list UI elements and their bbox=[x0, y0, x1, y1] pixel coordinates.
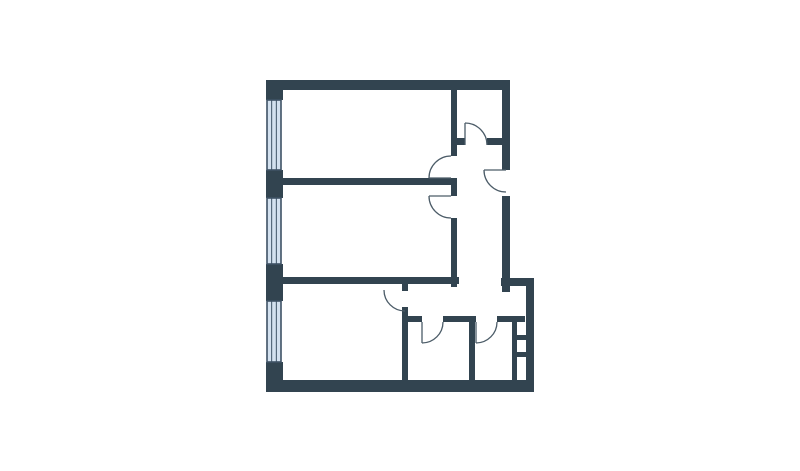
shaft-rung-1 bbox=[517, 335, 526, 340]
right-jog-wall bbox=[501, 278, 534, 286]
right-wall-upper bbox=[502, 80, 510, 170]
left-wall-pier-lower-mid bbox=[266, 264, 283, 301]
bath-toilet-divider-wall bbox=[469, 322, 475, 380]
top-wall bbox=[266, 80, 510, 90]
plan-background bbox=[0, 0, 800, 471]
corridor-wall-seg-top bbox=[451, 90, 457, 156]
storage-wall-seg-left bbox=[451, 138, 465, 145]
floor-plan-svg bbox=[0, 0, 800, 471]
shaft-left-wall bbox=[512, 322, 517, 380]
window-1 bbox=[267, 100, 281, 170]
living-door-stub-top bbox=[402, 284, 408, 291]
right-wall-lower bbox=[526, 286, 534, 386]
left-wall-pier-upper-mid bbox=[266, 170, 283, 198]
bath-wall-seg-left bbox=[402, 316, 422, 322]
window-2 bbox=[267, 198, 281, 264]
bath-wall-seg-right bbox=[497, 316, 525, 322]
bath-wall-seg-mid bbox=[443, 316, 476, 322]
storage-wall-seg-right bbox=[487, 138, 502, 145]
corridor-wall-seg-bottom bbox=[451, 218, 457, 287]
left-wall-pier-bottom bbox=[266, 362, 283, 392]
shaft-rung-2 bbox=[517, 352, 526, 357]
wall-living-divider bbox=[283, 277, 459, 284]
right-wall-mid bbox=[502, 196, 510, 292]
corridor-wall-seg-mid bbox=[451, 178, 457, 196]
bottom-wall bbox=[266, 380, 534, 392]
wall-bedrooms-divider bbox=[283, 178, 457, 185]
floor-plan-image bbox=[0, 0, 800, 471]
left-wall-pier-top bbox=[266, 80, 283, 100]
window-3 bbox=[267, 301, 281, 362]
